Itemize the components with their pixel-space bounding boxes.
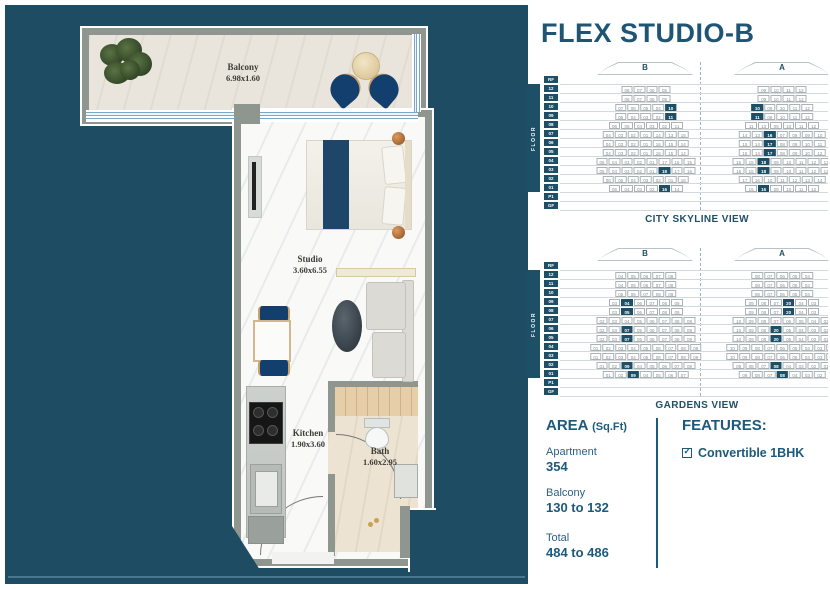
unit-group-b: 0102090405060708 (596, 362, 695, 369)
unit-group-b: 0504030211 (615, 113, 677, 120)
features-heading: FEATURES: (682, 417, 767, 434)
rug (332, 300, 362, 352)
unit-cell: 04 (634, 362, 646, 369)
unit-cell: 05 (646, 362, 658, 369)
unit-cell: 05 (596, 167, 608, 174)
unit-cell: 07 (634, 95, 646, 102)
unit-cell: 04 (802, 344, 814, 351)
unit-group-b: 050403021614 (609, 185, 683, 192)
unit-cell: 05 (783, 326, 795, 333)
unit-cell: 08 (752, 344, 764, 351)
unit-cell: 08 (671, 335, 683, 342)
floor-row: GF (527, 201, 828, 210)
unit-cell: 03 (615, 149, 627, 156)
unit-cell: 07 (653, 281, 665, 288)
unit-cell: 06 (640, 281, 652, 288)
unit-cell: 04 (628, 113, 640, 120)
unit-cell: 10 (727, 353, 739, 360)
unit-cell: 07 (634, 86, 646, 93)
unit-cell: 05 (621, 122, 633, 129)
unit-cell: 03 (808, 308, 820, 315)
unit-cell: 07 (764, 371, 776, 378)
unit-cell: 15 (745, 185, 757, 192)
unit-cell: 09 (671, 299, 683, 306)
unit-cell: 04 (634, 122, 646, 129)
unit-cell: 04 (802, 290, 814, 297)
floor-number: 11 (544, 94, 558, 102)
unit-cell: 03 (615, 344, 627, 351)
unit-group-a: 090807200403 (745, 308, 819, 315)
unit-cell: 04 (621, 299, 633, 306)
unit-cell: 10 (777, 113, 789, 120)
tower-label: B (597, 249, 693, 258)
unit-cell: 03 (820, 317, 828, 324)
unit-cell: 04 (603, 131, 615, 138)
unit-group-a: 1009082005040302 (733, 335, 828, 342)
unit-cell: 08 (752, 281, 764, 288)
unit-cell: 14 (678, 149, 690, 156)
unit-cell: 10 (783, 167, 795, 174)
unit-cell: 01 (590, 353, 602, 360)
diagram-rows: RF12040506070808070605041104050607080807… (527, 261, 828, 396)
unit-cell: 06 (646, 335, 658, 342)
unit-cell: 02 (615, 371, 627, 378)
balcony-glass-balustrade (86, 110, 234, 122)
unit-cell: 07 (764, 290, 776, 297)
unit-cell: 07 (621, 335, 633, 342)
door-handle (368, 522, 373, 527)
unit-cell: 07 (615, 104, 627, 111)
tower-roof: B (597, 248, 693, 261)
unit-cell: 09 (789, 140, 801, 147)
unit-cell: 10 (733, 317, 745, 324)
unit-cell: 06 (783, 317, 795, 324)
unit-cell: 10 (802, 149, 814, 156)
unit-group-a: 111309101112 (745, 122, 819, 129)
unit-cell: 09 (739, 371, 751, 378)
unit-cell: 04 (802, 353, 814, 360)
unit-cell: 03 (814, 344, 826, 351)
unit-cell: 05 (628, 272, 640, 279)
unit-group-b: 010203040506070809 (590, 353, 702, 360)
unit-cell: 06 (628, 290, 640, 297)
floor-number: 01 (544, 370, 558, 378)
unit-cell: 04 (628, 344, 640, 351)
unit-group-a: 0908070804030201 (733, 362, 828, 369)
unit-cell: 02 (609, 362, 621, 369)
unit-cell: 17 (739, 176, 751, 183)
unit-cell: 05 (659, 95, 671, 102)
floor-number: RF (544, 262, 558, 270)
floor-number: 02 (544, 361, 558, 369)
unit-cell: 04 (615, 281, 627, 288)
unit-group-a: 0807060504 (752, 281, 814, 288)
unit-cell: 02 (596, 317, 608, 324)
unit-cell: 15 (739, 149, 751, 156)
unit-cell: 08 (789, 131, 801, 138)
floor-number: 03 (544, 352, 558, 360)
unit-cell: 03 (609, 326, 621, 333)
unit-group-a: 17161011121314 (739, 176, 826, 183)
unit-cell: 06 (646, 86, 658, 93)
unit-cell: 16 (684, 167, 696, 174)
unit-cell: 02 (628, 140, 640, 147)
unit-cell: 10 (727, 344, 739, 351)
unit-cell: 20 (783, 308, 795, 315)
unit-group-a: 14131607080910 (739, 131, 826, 138)
unit-cell: 17 (671, 167, 683, 174)
unit-cell: 04 (802, 272, 814, 279)
unit-group-b: 04030201161514 (603, 149, 690, 156)
unit-cell: 04 (603, 140, 615, 147)
unit-cell: 14 (752, 140, 764, 147)
unit-cell: 09 (739, 344, 751, 351)
tower-label: B (597, 63, 693, 72)
unit-group-a: 100908070605040302 (727, 344, 828, 351)
unit-cell: 05 (596, 158, 608, 165)
floor-number: GF (544, 202, 558, 210)
balcony-side-glass (412, 34, 421, 112)
diagram-caption: GARDENS VIEW (567, 400, 827, 411)
unit-cell: 02 (653, 113, 665, 120)
unit-cell: 05 (615, 176, 627, 183)
unit-cell: 07 (653, 272, 665, 279)
unit-cell: 16 (733, 158, 745, 165)
floor-number: P1 (544, 379, 558, 387)
unit-cell: 04 (653, 104, 665, 111)
unit-cell: 14 (653, 131, 665, 138)
unit-cell: 12 (808, 167, 820, 174)
unit-group-a: 15141708091012 (739, 149, 826, 156)
unit-cell: 04 (621, 317, 633, 324)
unit-cell: 10 (770, 86, 782, 93)
unit-cell: 01 (646, 167, 658, 174)
unit-cell: 02 (659, 122, 671, 129)
unit-cell: 03 (609, 335, 621, 342)
diagram-rows: RF12080706050910111211080706050910111210… (527, 75, 828, 210)
unit-cell: 16 (671, 158, 683, 165)
unit-cell: 14 (752, 149, 764, 156)
unit-cell: 14 (671, 185, 683, 192)
unit-cell: 03 (808, 326, 820, 333)
unit-cell: 03 (609, 299, 621, 306)
unit-cell: 13 (802, 176, 814, 183)
unit-cell: 04 (609, 158, 621, 165)
unit-cell: 02 (827, 344, 828, 351)
unit-cell: 18 (659, 167, 671, 174)
unit-group-b: 04030201141315 (603, 131, 690, 138)
floor-number: 12 (544, 271, 558, 279)
unit-cell: 13 (820, 167, 828, 174)
floor-number: 01 (544, 184, 558, 192)
unit-group-a: 1109101112 (752, 113, 814, 120)
unit-cell: 09 (745, 335, 757, 342)
unit-cell: 08 (752, 353, 764, 360)
unit-cell: 06 (659, 362, 671, 369)
unit-cell: 09 (684, 317, 696, 324)
unit-cell: 02 (808, 362, 820, 369)
unit-cell: 06 (640, 272, 652, 279)
unit-cell: 08 (678, 353, 690, 360)
unit-cell: 09 (770, 158, 782, 165)
unit-cell: 15 (684, 158, 696, 165)
floor-number: 11 (544, 280, 558, 288)
unit-cell: 05 (640, 353, 652, 360)
unit-cell: 05 (634, 335, 646, 342)
unit-cell: 11 (814, 140, 826, 147)
floor-number: 09 (544, 112, 558, 120)
unit-cell: 12 (802, 104, 814, 111)
unit-cell: 05 (634, 317, 646, 324)
stacking-diagram-city: BAFLOORRF1208070605091011121108070605091… (527, 62, 828, 230)
area-item-apartment: Apartment 354 (546, 446, 597, 474)
unit-cell: 02 (603, 353, 615, 360)
unit-group-b: 0203070506070809 (596, 335, 695, 342)
unit-group-b: 04030201161514 (603, 140, 690, 147)
unit-cell: 13 (820, 158, 828, 165)
unit-group-a: 1615180910111213 (733, 158, 828, 165)
unit-cell: 08 (665, 281, 677, 288)
unit-cell: 03 (621, 158, 633, 165)
panel-accent-line (8, 576, 525, 578)
unit-cell: 08 (758, 326, 770, 333)
unit-cell: 04 (795, 299, 807, 306)
tv-screen (252, 162, 256, 210)
unit-cell: 08 (770, 362, 782, 369)
unit-cell: 09 (802, 131, 814, 138)
unit-cell: 05 (615, 290, 627, 297)
unit-cell: 11 (783, 86, 795, 93)
unit-cell: 14 (678, 140, 690, 147)
unit-cell: 18 (758, 158, 770, 165)
unit-cell: 04 (615, 272, 627, 279)
unit-cell: 09 (745, 326, 757, 333)
unit-cell: 02 (646, 185, 658, 192)
unit-cell: 01 (603, 371, 615, 378)
unit-cell: 08 (758, 299, 770, 306)
unit-cell: 05 (789, 344, 801, 351)
unit-cell: 05 (789, 281, 801, 288)
floor-line (560, 387, 828, 397)
unit-cell: 10 (783, 122, 795, 129)
floor-number: 04 (544, 157, 558, 165)
unit-cell: 16 (653, 149, 665, 156)
unit-cell: 02 (820, 326, 828, 333)
unit-cell: 15 (739, 140, 751, 147)
unit-cell: 02 (634, 167, 646, 174)
unit-cell: 10 (770, 95, 782, 102)
unit-cell: 07 (758, 362, 770, 369)
tower-label: A (734, 249, 828, 258)
dining-table (253, 320, 291, 362)
floor-number: 02 (544, 175, 558, 183)
unit-cell: 06 (646, 326, 658, 333)
unit-cell: 07 (764, 353, 776, 360)
unit-cell: 03 (808, 335, 820, 342)
unit-cell: 08 (777, 149, 789, 156)
unit-cell: 11 (789, 104, 801, 111)
unit-cell: 08 (752, 371, 764, 378)
unit-cell: 06 (777, 344, 789, 351)
unit-cell: 03 (795, 362, 807, 369)
unit-cell: 06 (665, 371, 677, 378)
unit-cell: 20 (770, 326, 782, 333)
unit-cell: 09 (628, 371, 640, 378)
unit-group-a: 09101112 (758, 86, 807, 93)
unit-cell: 10 (802, 140, 814, 147)
unit-cell: 03 (808, 299, 820, 306)
unit-cell: 17 (659, 158, 671, 165)
unit-cell: 11 (745, 122, 757, 129)
unit-cell: 07 (678, 371, 690, 378)
unit-cell: 02 (634, 158, 646, 165)
unit-cell: 03 (646, 122, 658, 129)
unit-cell: 09 (671, 308, 683, 315)
unit-cell: 06 (646, 95, 658, 102)
unit-group-a: 09080708040302 (739, 371, 826, 378)
unit-cell: 07 (646, 308, 658, 315)
unit-cell: 15 (678, 131, 690, 138)
unit-cell: 11 (795, 167, 807, 174)
unit-group-b: 030506070809 (609, 308, 683, 315)
floor-row: GF (527, 387, 828, 396)
tower-roof: A (734, 62, 828, 75)
dining-chair (258, 360, 290, 376)
unit-group-a: 1009101112 (752, 104, 814, 111)
unit-cell: 07 (764, 344, 776, 351)
unit-cell: 11 (783, 95, 795, 102)
unit-cell: 12 (789, 176, 801, 183)
unit-cell: 08 (659, 308, 671, 315)
unit-cell: 10 (733, 326, 745, 333)
unit-cell: 02 (628, 149, 640, 156)
floor-number: 06 (544, 139, 558, 147)
unit-group-a: 100908070605040302 (727, 353, 828, 360)
unit-cell: 04 (795, 326, 807, 333)
unit-cell: 09 (758, 86, 770, 93)
unit-group-b: 08070605 (621, 95, 670, 102)
studio-label: Studio 3.60x6.55 (270, 254, 350, 276)
unit-cell: 03 (609, 308, 621, 315)
unit-group-a: 1009080706050403 (733, 317, 828, 324)
unit-cell: 01 (640, 149, 652, 156)
unit-cell: 02 (827, 353, 828, 360)
brochure-page: Balcony 6.98x1.60 Studio 3.60x6.55 Kitch… (0, 0, 830, 590)
unit-cell: 04 (603, 149, 615, 156)
unit-cell: 16 (653, 140, 665, 147)
unit-cell: 11 (752, 113, 764, 120)
unit-cell: 08 (671, 326, 683, 333)
unit-cell: 05 (621, 308, 633, 315)
unit-cell: 03 (615, 140, 627, 147)
unit-cell: 02 (820, 335, 828, 342)
unit-cell: 04 (609, 167, 621, 174)
unit-group-b: 08070605 (621, 86, 670, 93)
unit-cell: 10 (752, 104, 764, 111)
unit-cell: 05 (628, 281, 640, 288)
unit-cell: 03 (621, 167, 633, 174)
unit-cell: 09 (745, 317, 757, 324)
unit-cell: 06 (777, 281, 789, 288)
unit-cell: 09 (745, 308, 757, 315)
unit-cell: 04 (628, 353, 640, 360)
unit-cell: 08 (684, 362, 696, 369)
unit-cell: 20 (783, 299, 795, 306)
unit-cell: 16 (758, 185, 770, 192)
unit-cell: 06 (777, 290, 789, 297)
unit-cell: 13 (665, 131, 677, 138)
unit-cell: 02 (596, 326, 608, 333)
unit-group-a: 1009082005040302 (733, 326, 828, 333)
floor-number: RF (544, 76, 558, 84)
unit-cell: 05 (789, 290, 801, 297)
unit-cell: 08 (777, 140, 789, 147)
floor-number: 12 (544, 85, 558, 93)
bed (306, 140, 412, 230)
unit-cell: 09 (665, 290, 677, 297)
floor-number: 08 (544, 307, 558, 315)
area-heading: AREA (Sq.Ft) (546, 417, 627, 434)
unit-cell: 01 (596, 362, 608, 369)
unit-group-b: 0706050410 (615, 104, 677, 111)
unit-cell: 04 (802, 281, 814, 288)
plan-step-notch-right (408, 508, 436, 572)
floor-number: P1 (544, 193, 558, 201)
unit-cell: 06 (603, 176, 615, 183)
checkbox-checked-icon (682, 448, 692, 458)
floor-number: 10 (544, 103, 558, 111)
unit-cell: 07 (671, 362, 683, 369)
unit-cell: 07 (665, 344, 677, 351)
unit-cell: 03 (615, 131, 627, 138)
section-divider (656, 418, 658, 568)
unit-cell: 04 (789, 371, 801, 378)
unit-cell: 04 (783, 362, 795, 369)
unit-group-a: 090807200403 (745, 299, 819, 306)
unit-cell: 08 (758, 308, 770, 315)
unit-cell: 10 (783, 185, 795, 192)
unit-cell: 10 (814, 131, 826, 138)
unit-cell: 05 (783, 335, 795, 342)
unit-cell: 08 (678, 344, 690, 351)
unit-cell: 06 (777, 353, 789, 360)
unit-cell: 06 (634, 308, 646, 315)
unit-cell: 06 (777, 272, 789, 279)
unit-cell: 09 (684, 335, 696, 342)
area-item-total: Total 484 to 486 (546, 532, 609, 560)
unit-cell: 11 (795, 185, 807, 192)
unit-cell: 01 (640, 131, 652, 138)
unit-cell: 12 (808, 158, 820, 165)
unit-cell: 09 (789, 149, 801, 156)
stacking-diagram-gardens: BAFLOORRF1204050607080807060504110405060… (527, 248, 828, 416)
unit-group-b: 0506070809 (615, 290, 677, 297)
unit-group-b: 0405060708 (615, 272, 677, 279)
unit-cell: 06 (634, 299, 646, 306)
unit-cell: 08 (671, 317, 683, 324)
unit-cell: 04 (795, 308, 807, 315)
unit-cell: 05 (640, 104, 652, 111)
unit-cell: 06 (653, 344, 665, 351)
bath-step-wall (400, 506, 410, 558)
unit-cell: 09 (690, 353, 702, 360)
unit-cell: 13 (752, 131, 764, 138)
unit-cell: 03 (640, 113, 652, 120)
unit-cell: 09 (770, 122, 782, 129)
unit-cell: 02 (653, 176, 665, 183)
floor-number: 03 (544, 166, 558, 174)
unit-cell: 07 (770, 317, 782, 324)
